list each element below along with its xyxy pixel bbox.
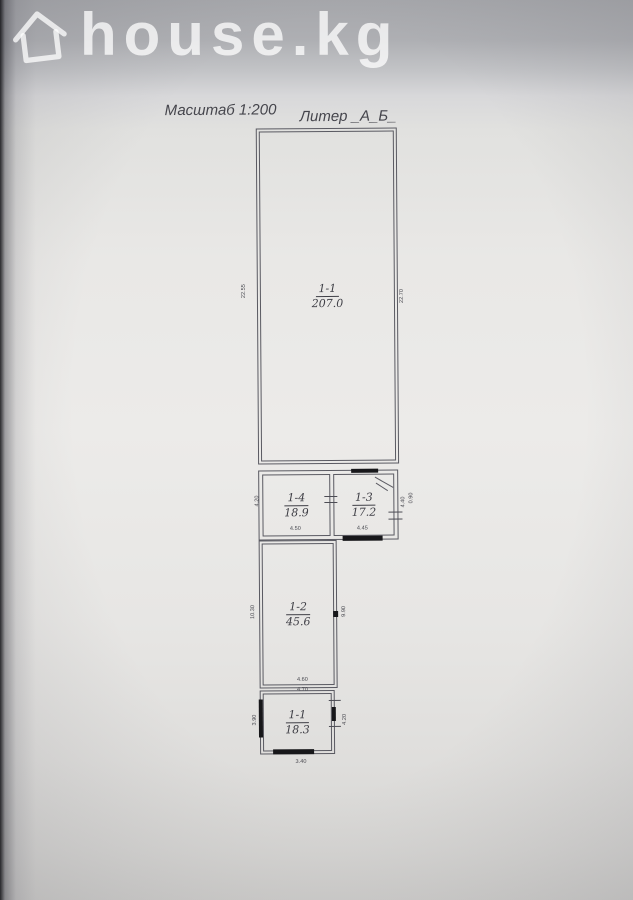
room-area: 18.9 (284, 506, 309, 520)
dim-label-r12-right: 9.90 (341, 606, 347, 617)
dim-label-r13-bottom: 4.45 (357, 525, 368, 531)
room-number: 1-1 (315, 282, 339, 297)
dim-label-r12-bottom: 4.60 (297, 677, 308, 683)
door-tick (329, 700, 341, 701)
door-tick (324, 502, 337, 503)
dim-label-top-left: 22.55 (241, 284, 247, 298)
dim-label-top-right: 22.70 (399, 289, 405, 303)
room-area: 207.0 (312, 296, 344, 310)
room-label: 1-1 18.3 (285, 708, 310, 737)
scale-label: Масштаб 1:200 (165, 101, 277, 119)
room-number: 1-3 (352, 490, 376, 505)
dim-label-mid-right-b: 0.90 (408, 492, 414, 503)
dim-label-r11-right: 4.20 (342, 714, 348, 725)
room-area: 45.6 (286, 615, 311, 629)
door-tick (388, 511, 402, 512)
photo-background: house.kg Масштаб 1:200 Литер _А_Б_ 1-1 2… (0, 0, 633, 900)
room-label: 1-3 17.2 (352, 490, 377, 519)
door-tick (388, 518, 402, 519)
room-number: 1-2 (286, 600, 310, 615)
wall-segment-r11-right (332, 707, 336, 721)
dim-label-r12-left: 10.30 (250, 605, 256, 619)
room-area: 17.2 (352, 505, 377, 519)
wall-segment-r11-left (259, 699, 263, 737)
room-number: 1-4 (284, 491, 308, 506)
wall-segment-r12-right (333, 611, 338, 617)
room-number: 1-1 (285, 708, 309, 723)
room-1-1-bottom: 1-1 18.3 (260, 690, 335, 755)
room-1-1-main: 1-1 207.0 (256, 128, 399, 465)
room-1-2: 1-2 45.6 (259, 540, 338, 689)
dim-label-mid-right-a: 4.40 (400, 497, 406, 508)
dim-label-r11-bottom: 3.40 (296, 759, 307, 765)
door-tick (324, 496, 337, 497)
dim-label-mid-left: 4.20 (254, 496, 260, 507)
room-area: 18.3 (285, 723, 310, 737)
dim-label-r14-bottom: 4.50 (290, 526, 301, 532)
wall-segment-mid-top (351, 469, 378, 473)
room-label: 1-1 207.0 (312, 282, 344, 311)
dim-label-r11-left: 3.90 (252, 715, 258, 726)
door-tick (329, 726, 341, 727)
wall-segment-r11-bottom (273, 749, 314, 754)
dim-label-r11-top: 4.70 (297, 687, 308, 693)
floor-plan: Масштаб 1:200 Литер _А_Б_ 1-1 207.0 22.5… (0, 0, 633, 900)
room-label: 1-2 45.6 (286, 600, 311, 629)
liter-label: Литер _А_Б_ (300, 108, 397, 126)
room-label: 1-4 18.9 (284, 491, 309, 520)
wall-segment-mid-bottom (343, 536, 383, 541)
